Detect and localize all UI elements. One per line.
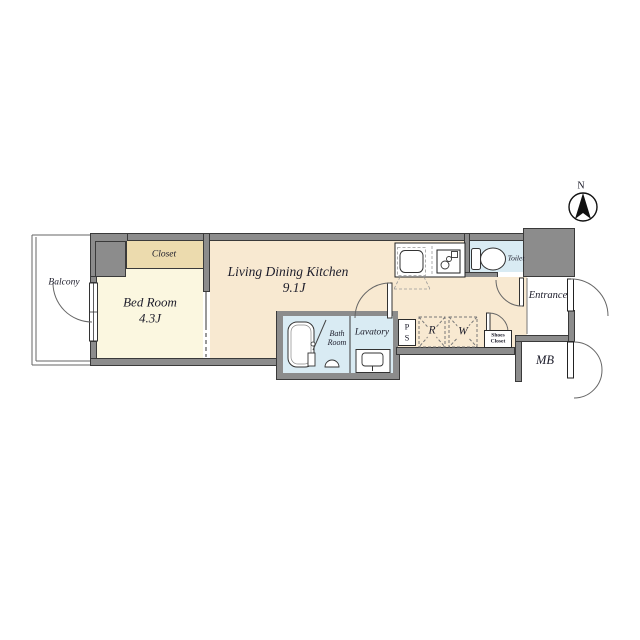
floor-plan: Balcony Closet Bed Room 4.3J Living Dini… (0, 0, 640, 640)
compass (569, 193, 597, 221)
entrance-floor (527, 277, 568, 335)
balcony-outline (32, 235, 90, 365)
ldk-label: Living Dining Kitchen (228, 264, 349, 280)
closet-label: Closet (152, 250, 176, 261)
ldk-size: 9.1J (283, 280, 306, 296)
wall-hall-bottom (396, 347, 515, 355)
mb-doors (568, 342, 603, 398)
north-arrow-icon (575, 193, 591, 219)
wall-corner-top-right (523, 228, 575, 277)
lavatory-label: Lavatory (355, 328, 389, 339)
ldk-floor-left (210, 310, 276, 358)
wall-bottom-main (90, 358, 283, 366)
bath-label: Bath Room (322, 329, 352, 347)
bedroom-size: 4.3J (139, 312, 161, 327)
shoes-closet-label: Shoes Closet (486, 333, 511, 346)
wall-mb-left (515, 335, 522, 382)
wall-right-below-door (568, 310, 575, 342)
mb-label: MB (536, 353, 554, 367)
wall-mb-top (515, 335, 575, 342)
pipe-space-label: PS (403, 321, 412, 342)
lavatory-floor (350, 316, 393, 373)
refrigerator-label: R (427, 324, 436, 337)
balcony-window (53, 283, 98, 341)
washer-label: W (457, 325, 469, 338)
compass-north-label: N (577, 180, 584, 192)
wall-bedroom-ldk (203, 233, 210, 292)
wall-bedroom-notch-inner (95, 241, 126, 277)
entrance-label: Entrance (529, 290, 568, 302)
bedroom-label: Bed Room (123, 296, 177, 311)
toilet-label: Toilet (508, 255, 525, 264)
balcony-label: Balcony (48, 278, 79, 289)
